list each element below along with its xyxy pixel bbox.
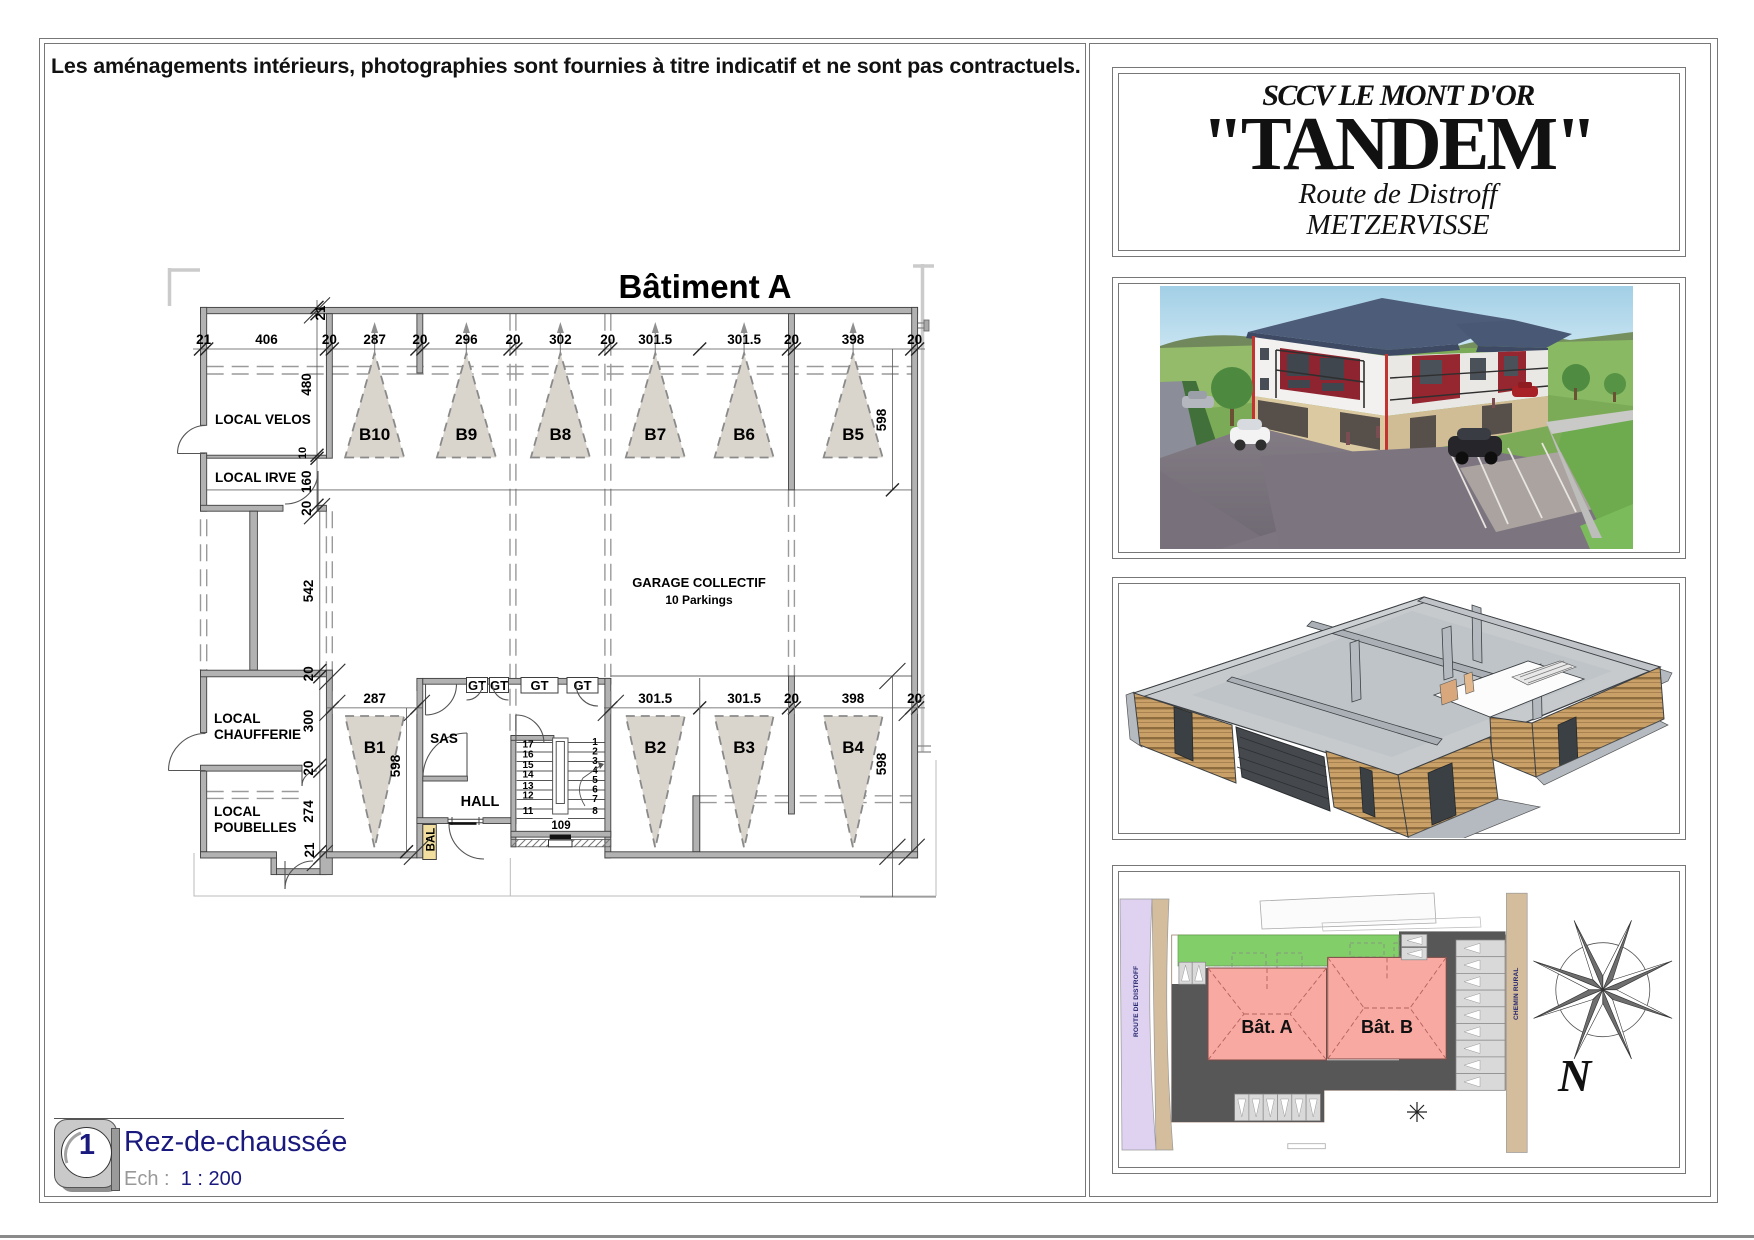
svg-text:300: 300	[301, 710, 316, 733]
svg-text:LOCAL IRVE: LOCAL IRVE	[215, 470, 296, 485]
svg-text:BAL: BAL	[426, 828, 438, 852]
svg-text:20: 20	[600, 332, 615, 347]
svg-text:480: 480	[299, 373, 314, 396]
svg-text:160: 160	[299, 470, 314, 493]
svg-text:406: 406	[255, 332, 278, 347]
svg-text:11: 11	[523, 806, 534, 817]
svg-text:109: 109	[551, 820, 570, 832]
svg-text:20: 20	[907, 332, 922, 347]
svg-text:301.5: 301.5	[638, 691, 672, 706]
svg-text:598: 598	[388, 754, 403, 777]
svg-text:N: N	[1557, 1050, 1593, 1101]
svg-text:Bât. A: Bât. A	[1241, 1017, 1292, 1037]
svg-text:12: 12	[522, 791, 534, 802]
svg-text:LOCAL: LOCAL	[214, 804, 261, 819]
svg-text:GT: GT	[530, 678, 548, 693]
svg-text:20: 20	[412, 332, 427, 347]
svg-text:20: 20	[784, 691, 799, 706]
svg-text:296: 296	[455, 332, 478, 347]
svg-text:CHAUFFERIE: CHAUFFERIE	[214, 727, 301, 742]
svg-text:Bâtiment A: Bâtiment A	[619, 268, 792, 305]
svg-text:B10: B10	[359, 425, 390, 444]
svg-text:7: 7	[592, 794, 598, 805]
svg-text:21: 21	[196, 332, 212, 347]
svg-text:POUBELLES: POUBELLES	[214, 820, 297, 835]
svg-text:LOCAL: LOCAL	[214, 711, 261, 726]
svg-text:GARAGE COLLECTIF: GARAGE COLLECTIF	[632, 575, 766, 590]
svg-text:274: 274	[301, 800, 316, 823]
svg-text:598: 598	[874, 408, 889, 431]
svg-text:B9: B9	[456, 425, 478, 444]
svg-text:14: 14	[522, 770, 534, 781]
svg-text:20: 20	[907, 691, 922, 706]
svg-text:B2: B2	[644, 738, 666, 757]
svg-text:10 Parkings: 10 Parkings	[665, 593, 733, 607]
svg-text:598: 598	[874, 752, 889, 775]
svg-text:301.5: 301.5	[727, 691, 761, 706]
svg-text:B6: B6	[733, 425, 755, 444]
svg-text:B1: B1	[364, 738, 386, 757]
svg-text:B3: B3	[733, 738, 755, 757]
svg-text:287: 287	[363, 332, 386, 347]
svg-text:ROUTE DE DISTROFF: ROUTE DE DISTROFF	[1133, 966, 1140, 1037]
svg-text:398: 398	[842, 332, 865, 347]
svg-text:SAS: SAS	[430, 731, 458, 746]
svg-text:LOCAL VELOS: LOCAL VELOS	[215, 412, 311, 427]
svg-text:B4: B4	[842, 738, 864, 757]
svg-text:20: 20	[505, 332, 520, 347]
svg-text:HALL: HALL	[461, 794, 500, 810]
svg-text:16: 16	[522, 750, 534, 761]
svg-text:398: 398	[842, 691, 865, 706]
svg-text:CHEMIN RURAL: CHEMIN RURAL	[1513, 967, 1520, 1020]
svg-text:20: 20	[322, 332, 337, 347]
svg-text:20: 20	[301, 666, 316, 681]
svg-text:302: 302	[549, 332, 572, 347]
svg-text:20: 20	[784, 332, 799, 347]
svg-text:Bât. B: Bât. B	[1361, 1017, 1413, 1037]
svg-text:10: 10	[297, 447, 309, 459]
svg-text:20: 20	[299, 501, 314, 516]
svg-text:301.5: 301.5	[727, 332, 761, 347]
svg-text:20: 20	[301, 761, 316, 776]
svg-text:B5: B5	[842, 425, 864, 444]
svg-text:301.5: 301.5	[638, 332, 672, 347]
svg-text:8: 8	[592, 806, 598, 817]
svg-text:287: 287	[363, 691, 386, 706]
svg-text:GT: GT	[468, 678, 486, 693]
svg-text:B7: B7	[644, 425, 666, 444]
svg-text:B8: B8	[550, 425, 572, 444]
svg-text:542: 542	[301, 580, 316, 603]
svg-text:21: 21	[302, 842, 317, 858]
